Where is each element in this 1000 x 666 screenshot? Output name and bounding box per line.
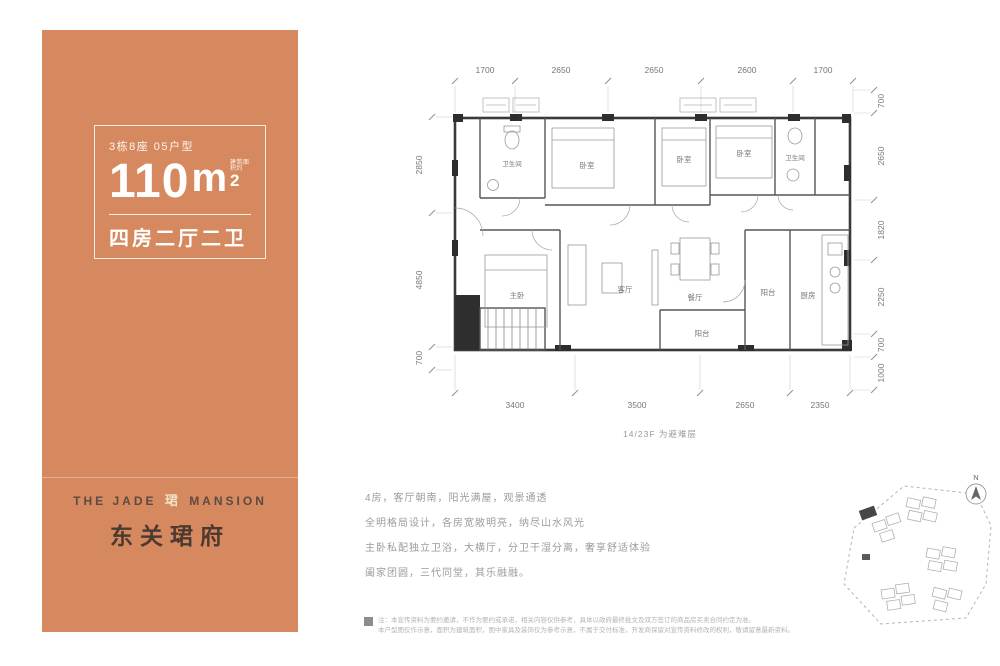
dim-bottom-3: 2650 [736, 400, 755, 410]
compass: N [966, 473, 986, 504]
toilet-icon [505, 131, 519, 149]
brand-english: THE JADE 珺 MANSION [42, 490, 298, 509]
dim-left-1: 2850 [414, 155, 424, 174]
dim-right-2: 2650 [876, 146, 886, 165]
unit-tag: 3栋8座 05户型 [109, 138, 251, 154]
extension-lines [436, 86, 871, 390]
dim-right-4: 2250 [876, 287, 886, 306]
disclaimer: 注：本宣传资料为要约邀请，不作为要约或承诺，相关内容仅供参考，具体以政府最终批文… [364, 616, 864, 636]
room-labels: 卫生间 卧室 卧室 卧室 卫生间 厨房 主卧 客厅 餐厅 阳台 阳台 [502, 148, 815, 338]
dim-top-2: 2650 [552, 65, 571, 75]
dim-right-6: 1000 [876, 363, 886, 382]
room-label-balcony-bottom: 阳台 [695, 328, 710, 338]
siteplan-map: N [826, 466, 996, 636]
brand-glyph-icon: 珺 [165, 493, 181, 508]
site-marker [862, 554, 870, 560]
room-label-balcony-right: 阳台 [761, 287, 776, 297]
disclaimer-text: 注：本宣传资料为要约邀请，不作为要约或承诺，相关内容仅供参考，具体以政府最终批文… [378, 616, 794, 636]
room-label-dining: 餐厅 [688, 293, 703, 302]
area-row: 110 m 建筑面积约 2 [109, 158, 251, 206]
room-label-bed3: 卧室 [677, 154, 692, 164]
stair-hatch [488, 308, 536, 350]
disclaimer-logo-icon [364, 617, 373, 626]
dim-bottom-4: 2350 [811, 400, 830, 410]
dim-left-2: 4850 [414, 270, 424, 289]
dim-top-1: 1700 [476, 65, 495, 75]
selling-points: 4房，客厅朝南，阳光满屋，观景通透 全明格局设计，各房宽敞明亮，纳尽山水风光 主… [365, 486, 705, 586]
dim-left-3: 700 [414, 351, 424, 365]
room-label-master: 主卧 [510, 290, 525, 300]
dim-top-4: 2600 [738, 65, 757, 75]
layout-text: 四房二厅二卫 [109, 222, 251, 251]
room-label-bath1: 卫生间 [502, 159, 522, 168]
room-label-bed2: 卧室 [580, 160, 595, 170]
spec-divider [109, 214, 251, 215]
room-label-living: 客厅 [618, 284, 633, 294]
room-label-kitchen: 厨房 [801, 290, 816, 300]
plan-note: 14/23F 为避难层 [623, 429, 697, 439]
dim-bottom-1: 3400 [506, 400, 525, 410]
disclaimer-line-2: 本户型图仅作示意，面积为建筑面积，图中家具及装饰仅为参考示意，不属于交付标准，开… [378, 626, 794, 636]
brand-divider [42, 477, 298, 478]
outer-wall [455, 118, 850, 350]
area-note: 建筑面积约 [230, 160, 251, 172]
selling-point-4: 阖家团圆，三代同堂，其乐融融。 [365, 561, 705, 586]
left-promo-panel: 3栋8座 05户型 110 m 建筑面积约 2 四房二厅二卫 THE JADE … [42, 30, 298, 632]
spec-box: 3栋8座 05户型 110 m 建筑面积约 2 四房二厅二卫 [94, 125, 266, 259]
selling-point-3: 主卧私配独立卫浴，大横厅，分卫干湿分离，奢享舒适体验 [365, 536, 705, 561]
tv-cabinet [652, 250, 658, 305]
area-exponent: 2 [230, 172, 239, 189]
room-label-bath2: 卫生间 [785, 153, 805, 162]
highlighted-building [859, 506, 877, 521]
area-value: 110 [109, 158, 189, 206]
dim-bottom-2: 3500 [628, 400, 647, 410]
brand-chinese: 东关珺府 [42, 517, 298, 551]
brand-block: THE JADE 珺 MANSION 东关珺府 [42, 477, 298, 551]
dining-table [680, 238, 710, 280]
selling-point-2: 全明格局设计，各房宽敞明亮，纳尽山水风光 [365, 511, 705, 536]
dim-right-1: 700 [876, 94, 886, 108]
room-label-bed4: 卧室 [737, 148, 752, 158]
building-clusters [871, 494, 962, 615]
sink-icon [488, 180, 499, 191]
interior-walls [480, 118, 850, 350]
dim-right-3: 1820 [876, 220, 886, 239]
ac-unit-boxes [483, 98, 756, 112]
poster-page: 3栋8座 05户型 110 m 建筑面积约 2 四房二厅二卫 THE JADE … [0, 0, 1000, 666]
dim-top-5: 1700 [814, 65, 833, 75]
area-unit: m [191, 158, 227, 198]
selling-point-1: 4房，客厅朝南，阳光满屋，观景通透 [365, 486, 705, 511]
dim-top-3: 2650 [645, 65, 664, 75]
brand-en-left: THE JADE [73, 494, 156, 508]
disclaimer-line-1: 注：本宣传资料为要约邀请，不作为要约或承诺，相关内容仅供参考，具体以政府最终批文… [378, 616, 794, 626]
sofa [568, 245, 586, 305]
floorplan-drawing: 1700 2650 2650 2600 1700 700 2650 1820 2… [380, 40, 980, 470]
sink2-icon [787, 169, 799, 181]
compass-north-label: N [973, 473, 978, 482]
area-superscript: 建筑面积约 2 [230, 160, 251, 189]
dim-right-5: 700 [876, 338, 886, 352]
toilet2-icon [788, 128, 802, 144]
brand-en-right: MANSION [189, 494, 267, 508]
